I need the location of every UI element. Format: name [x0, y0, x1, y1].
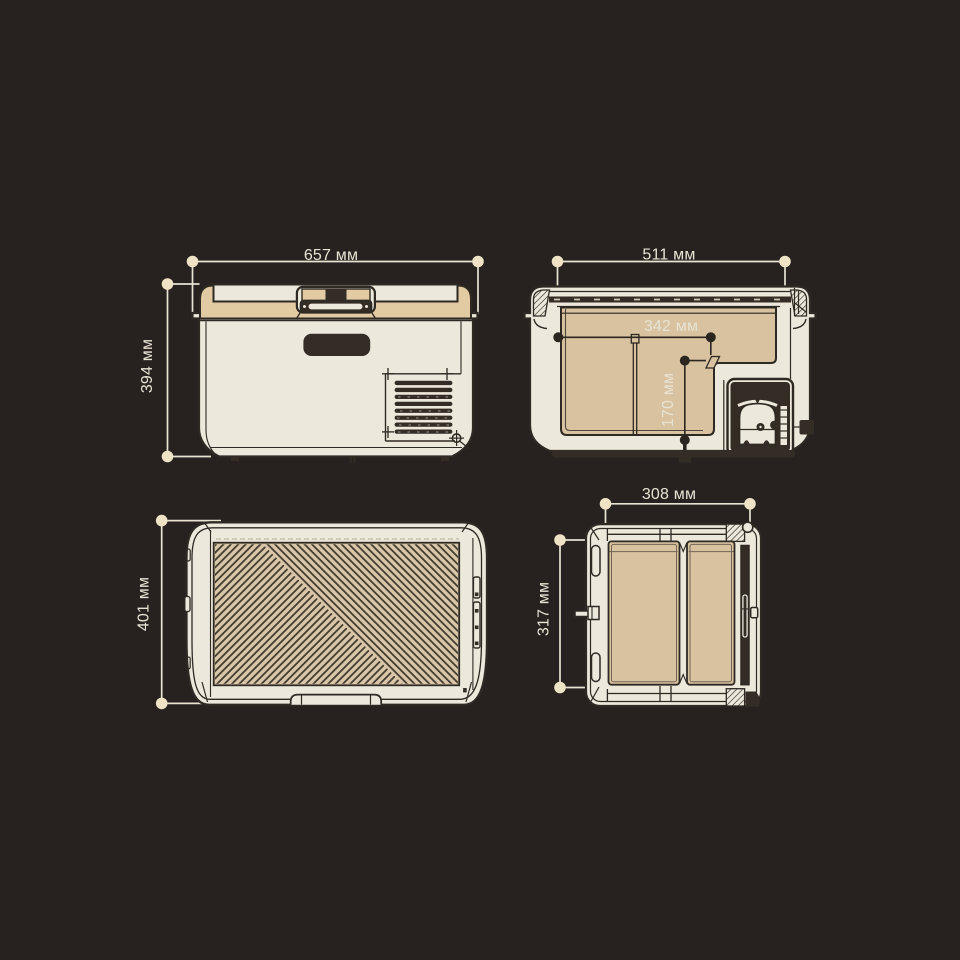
- svg-text:317 мм: 317 мм: [536, 582, 553, 636]
- svg-text:170 мм: 170 мм: [660, 373, 677, 427]
- svg-text:657 мм: 657 мм: [304, 247, 358, 264]
- svg-text:511 мм: 511 мм: [642, 247, 695, 264]
- svg-text:394 мм: 394 мм: [139, 339, 156, 393]
- svg-text:308 мм: 308 мм: [642, 486, 696, 503]
- svg-text:342 мм: 342 мм: [644, 318, 698, 335]
- svg-text:401 мм: 401 мм: [136, 577, 153, 631]
